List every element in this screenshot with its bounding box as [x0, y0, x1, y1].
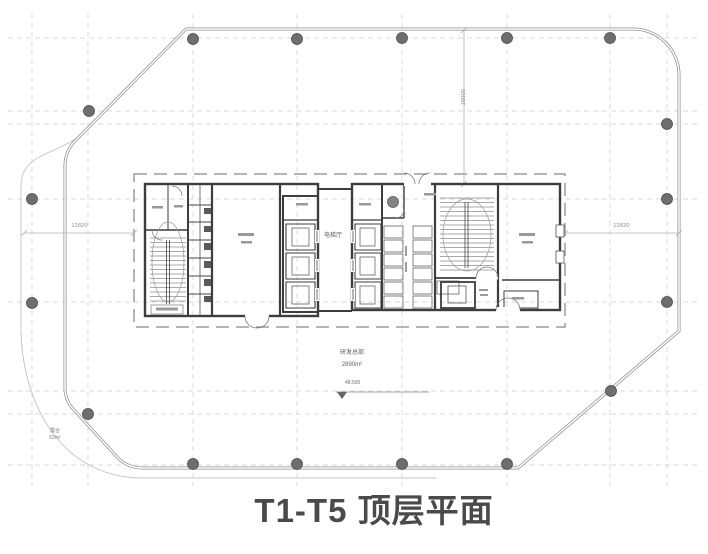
building-outline — [65, 29, 679, 468]
drawing-title: T1-T5 顶层平面 — [40, 484, 708, 532]
level-marker — [336, 392, 429, 399]
elevator-hall-label: 电梯厅 — [318, 233, 348, 240]
floor-plan-drawing — [0, 0, 708, 554]
main-zone-name-label: 研发总部 — [327, 350, 377, 357]
dimension-right: 12820 — [594, 223, 649, 229]
tower-boundary-dashed — [134, 174, 565, 327]
dimension-vertical: 16000 — [461, 82, 467, 112]
main-zone-area-label: 2890m² — [327, 362, 377, 369]
floor-plan-page: 12820 12820 16000 电梯厅 研发总部 2890m² 48.500… — [0, 0, 708, 554]
dimension-left: 12820 — [52, 223, 107, 229]
grid-lines — [8, 14, 700, 486]
terrace-name-label: 露台 — [42, 429, 68, 435]
terrace-area-label: 62m² — [42, 436, 68, 442]
level-mark-label: 48.500 — [345, 381, 360, 387]
columns-group — [27, 33, 673, 470]
